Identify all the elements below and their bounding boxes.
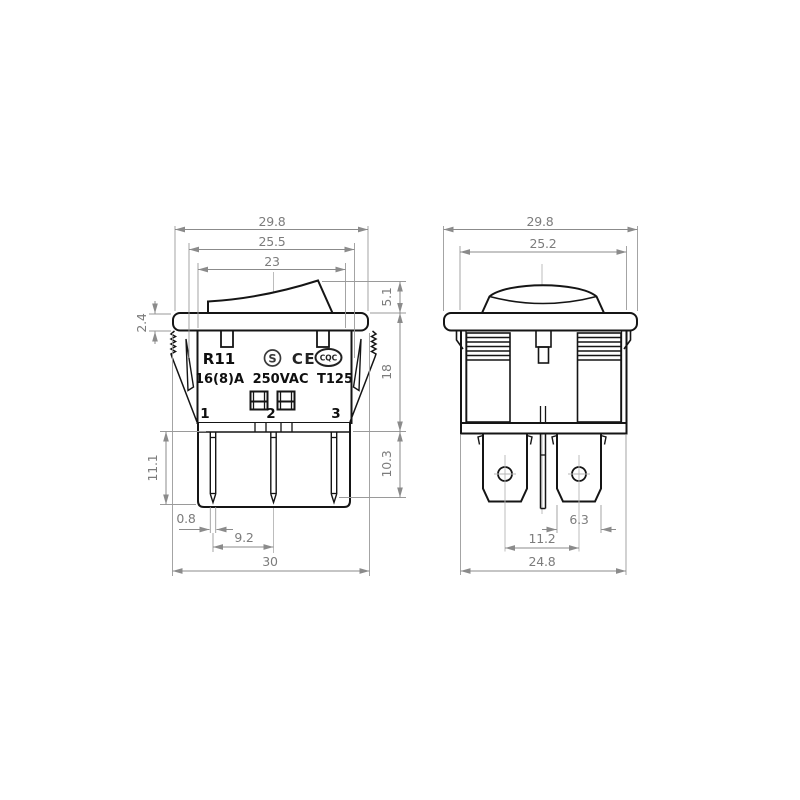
latch-arm-left xyxy=(171,331,197,422)
terminal-1-label: 1 xyxy=(200,406,209,422)
svg-text:30: 30 xyxy=(262,554,278,569)
dim-front-flange-thickness: 2.4 xyxy=(134,301,171,344)
front-view: R11 S CE CQC 16(8)A 250VAC T125 1 2 3 29… xyxy=(134,214,406,576)
terminal-2-label: 2 xyxy=(266,406,275,422)
rating-label: 16(8)A 250VAC T125 xyxy=(195,372,353,387)
svg-text:11.2: 11.2 xyxy=(528,531,555,546)
svg-text:6.3: 6.3 xyxy=(569,512,588,527)
dim-front-pin-pitch: 9.2 xyxy=(213,530,274,552)
cqc-mark-letters: CQC xyxy=(320,354,338,363)
center-pin xyxy=(541,434,546,509)
rocker-actuator xyxy=(208,281,333,314)
side-mounting-flange xyxy=(444,313,637,331)
terminal-base xyxy=(198,423,350,507)
svg-text:9.2: 9.2 xyxy=(234,530,253,545)
svg-text:18: 18 xyxy=(379,364,394,380)
svg-text:2.4: 2.4 xyxy=(134,313,149,333)
svg-text:11.1: 11.1 xyxy=(145,454,160,481)
svg-text:25.5: 25.5 xyxy=(258,234,285,249)
dim-front-pin-thickness: 0.8 xyxy=(176,507,233,533)
terminal-3-label: 3 xyxy=(331,406,340,422)
svg-text:29.8: 29.8 xyxy=(258,214,285,229)
svg-text:24.8: 24.8 xyxy=(528,554,555,569)
dim-side-terminal-pitch: 11.2 xyxy=(505,531,579,548)
side-switch-body xyxy=(461,331,627,424)
dim-front-pin-length: 11.1 xyxy=(145,432,206,505)
model-label: R11 xyxy=(203,350,235,368)
s-mark-letter: S xyxy=(268,352,276,366)
svg-text:25.2: 25.2 xyxy=(529,236,556,251)
svg-text:10.3: 10.3 xyxy=(379,450,394,477)
mounting-flange xyxy=(173,313,368,331)
ce-mark: CE xyxy=(292,350,316,368)
drawing-canvas: R11 S CE CQC 16(8)A 250VAC T125 1 2 3 29… xyxy=(0,0,800,800)
dim-front-rocker-height: 5.1 xyxy=(322,282,406,314)
svg-text:5.1: 5.1 xyxy=(379,287,394,306)
side-view: 29.8 25.2 6.3 11.2 24.8 xyxy=(444,214,638,575)
latch-arm-right xyxy=(350,331,376,422)
svg-text:0.8: 0.8 xyxy=(176,511,196,526)
switch-drawing: R11 S CE CQC 16(8)A 250VAC T125 1 2 3 29… xyxy=(0,0,800,800)
side-base-band xyxy=(461,423,627,434)
svg-text:23: 23 xyxy=(264,254,280,269)
svg-text:29.8: 29.8 xyxy=(526,214,553,229)
